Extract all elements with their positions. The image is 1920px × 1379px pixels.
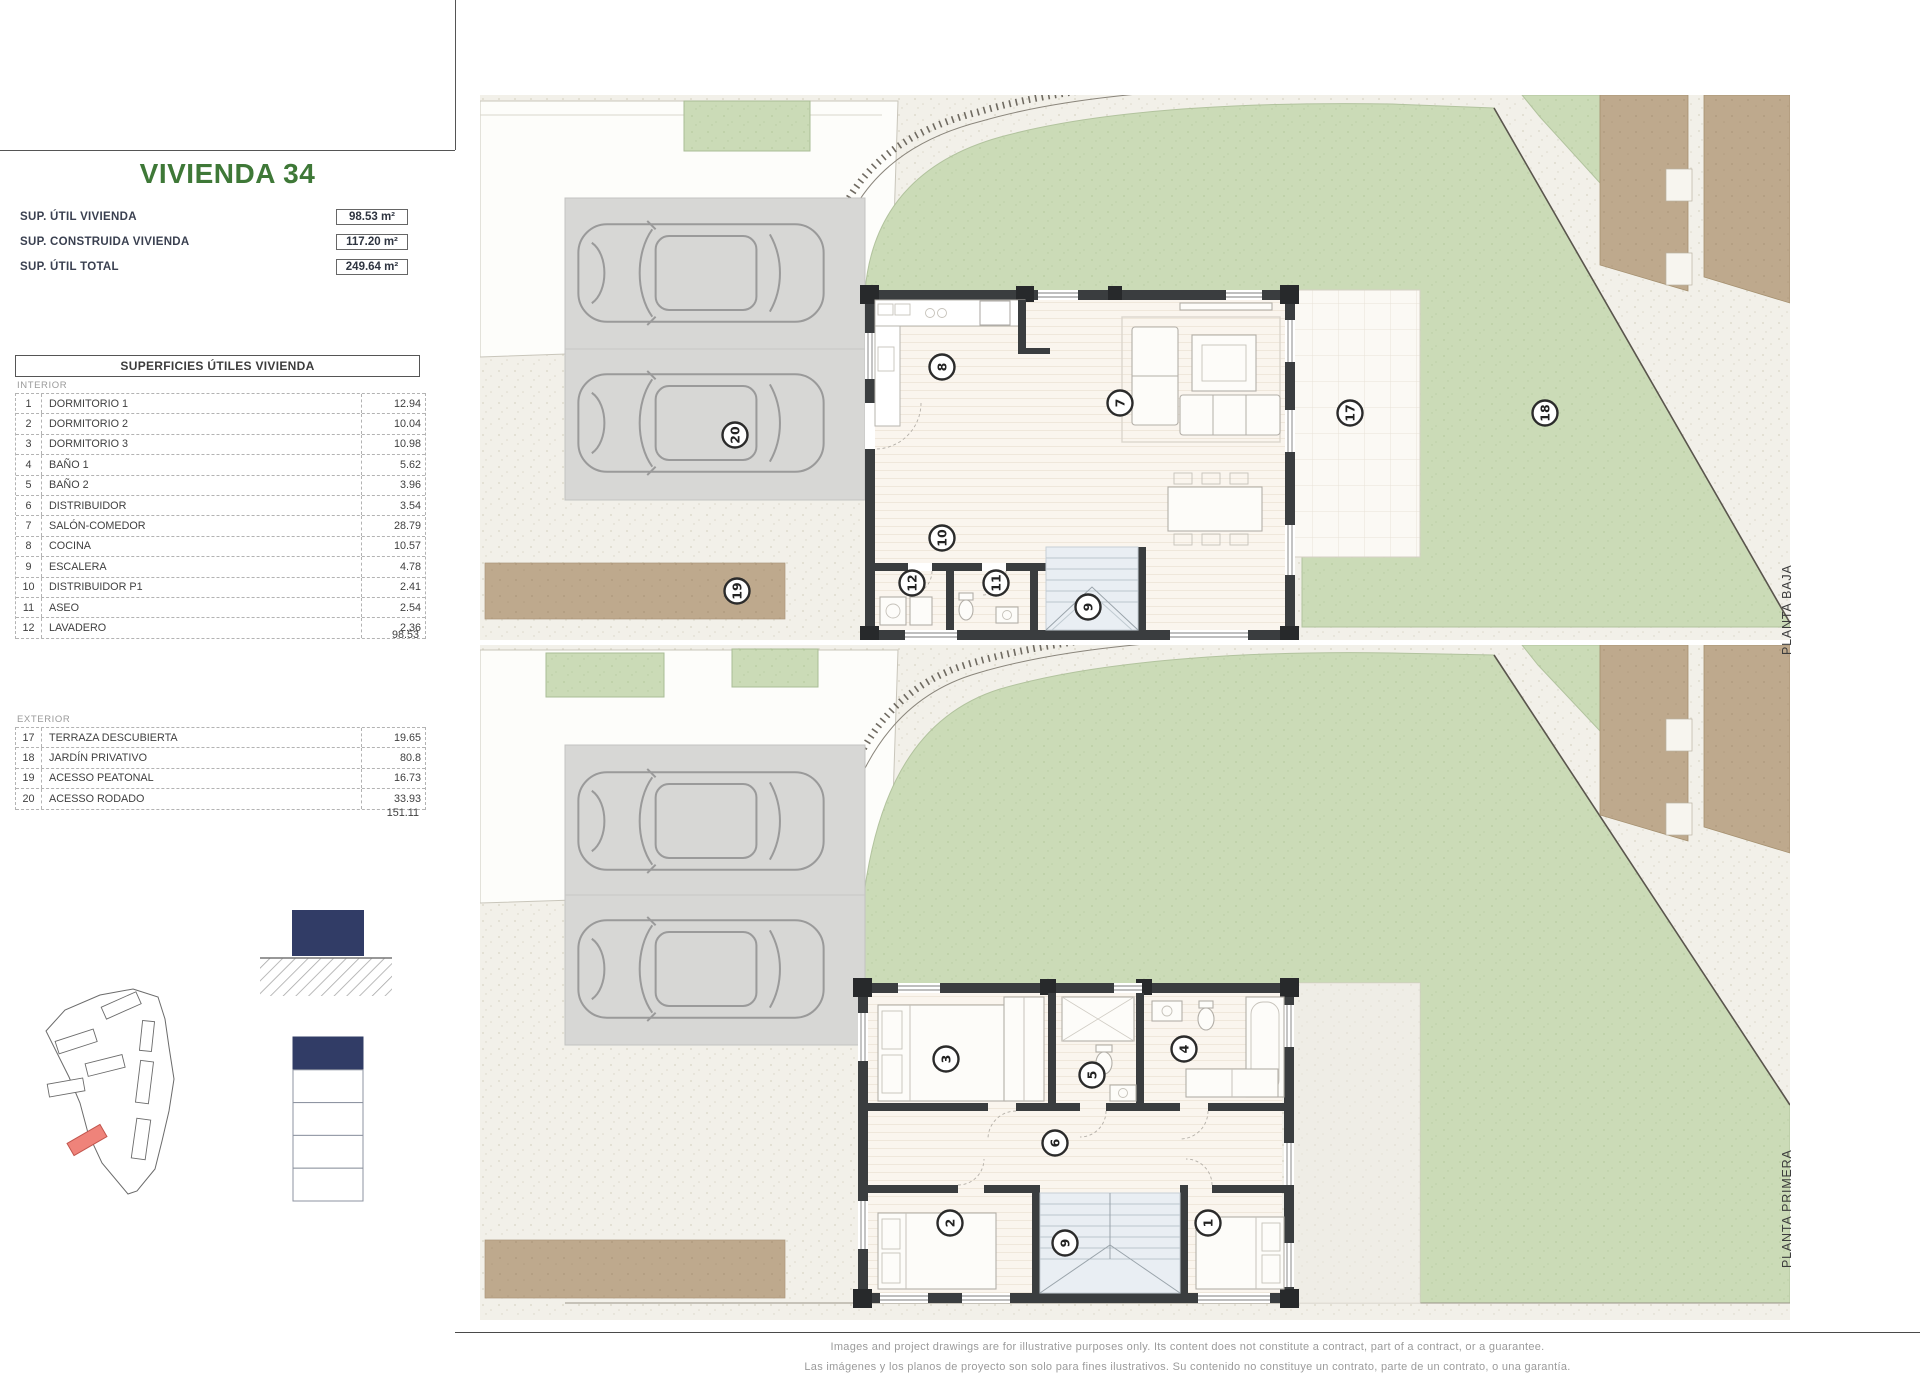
row-num: 18 — [16, 748, 42, 767]
row-num: 17 — [16, 728, 42, 747]
svg-text:4: 4 — [1177, 1044, 1192, 1053]
svg-text:2: 2 — [943, 1219, 958, 1228]
row-num: 19 — [16, 769, 42, 788]
summary-label: SUP. ÚTIL VIVIENDA — [20, 211, 137, 223]
footer-rule — [455, 1332, 1920, 1333]
row-num: 20 — [16, 789, 42, 808]
row-num: 4 — [16, 455, 42, 474]
row-name: JARDÍN PRIVATIVO — [42, 752, 361, 764]
svg-text:5: 5 — [1085, 1071, 1100, 1080]
floor-cell — [293, 1168, 363, 1201]
room-marker-peatonal: 19 — [725, 579, 750, 604]
row-value: 2.41 — [361, 578, 425, 597]
ground-hatch-icon — [260, 958, 392, 996]
row-num: 11 — [16, 598, 42, 617]
exterior-section-label: EXTERIOR — [17, 714, 70, 725]
plan-label-planta-baja: PLANTA BAJA — [1780, 564, 1794, 655]
row-num: 2 — [16, 414, 42, 433]
svg-text:10: 10 — [935, 529, 950, 547]
svg-text:6: 6 — [1048, 1138, 1063, 1147]
row-name: DORMITORIO 3 — [42, 438, 361, 450]
plan-sheet: VIVIENDA 34 SUP. ÚTIL VIVIENDA 98.53 m² … — [0, 0, 1920, 1379]
areas-table-header: SUPERFICIES ÚTILES VIVIENDA — [15, 355, 420, 377]
svg-text:7: 7 — [1113, 399, 1128, 408]
table-row: 7SALÓN-COMEDOR28.79 — [16, 516, 425, 536]
row-num: 9 — [16, 557, 42, 576]
ground-floor-plan: 8 7 10 12 11 9 17 18 19 20 — [480, 95, 1790, 640]
row-name: TERRAZA DESCUBIERTA — [42, 732, 361, 744]
room-marker-terraza: 17 — [1338, 401, 1363, 426]
row-name: DORMITORIO 1 — [42, 398, 361, 410]
disclaimer-es: Las imágenes y los planos de proyecto so… — [455, 1357, 1920, 1377]
elevation-key-diagram — [258, 906, 398, 998]
row-name: COCINA — [42, 540, 361, 552]
disclaimer: Images and project drawings are for illu… — [455, 1337, 1920, 1377]
pedestrian-path — [485, 1240, 785, 1298]
table-row: 1DORMITORIO 112.94 — [16, 393, 425, 414]
row-name: SALÓN-COMEDOR — [42, 520, 361, 532]
row-name: ACESSO RODADO — [42, 793, 361, 805]
svg-text:8: 8 — [935, 363, 950, 372]
row-value: 16.73 — [361, 769, 425, 788]
room-marker-distribuidor-p1: 6 — [1043, 1131, 1068, 1156]
row-name: DISTRIBUIDOR P1 — [42, 581, 361, 593]
building-volume-icon — [292, 910, 364, 956]
row-value: 2.54 — [361, 598, 425, 617]
floor-cell-active — [293, 1037, 363, 1070]
table-row: 3DORMITORIO 310.98 — [16, 435, 425, 455]
surface-summary: SUP. ÚTIL VIVIENDA 98.53 m² SUP. CONSTRU… — [20, 204, 408, 279]
table-row: 9ESCALERA4.78 — [16, 557, 425, 577]
svg-text:20: 20 — [728, 426, 743, 444]
row-num: 10 — [16, 578, 42, 597]
svg-text:3: 3 — [939, 1055, 954, 1064]
room-marker-bano2: 5 — [1080, 1063, 1105, 1088]
svg-text:19: 19 — [730, 582, 745, 599]
room-marker-dorm1: 1 — [1196, 1211, 1221, 1236]
row-value: 10.57 — [361, 537, 425, 556]
svg-text:18: 18 — [1538, 404, 1553, 421]
header-rule — [0, 150, 455, 151]
row-value: 12.94 — [361, 394, 425, 413]
summary-value: 249.64 m² — [336, 259, 408, 275]
table-row: 18JARDÍN PRIVATIVO80.8 — [16, 748, 425, 768]
table-row: 2DORMITORIO 210.04 — [16, 414, 425, 434]
room-marker-aseo: 11 — [984, 571, 1009, 596]
interior-section-label: INTERIOR — [17, 380, 67, 391]
summary-row: SUP. ÚTIL TOTAL 249.64 m² — [20, 254, 408, 279]
row-value: 19.65 — [361, 728, 425, 747]
table-row: 17TERRAZA DESCUBIERTA19.65 — [16, 727, 425, 748]
room-marker-escalera: 9 — [1076, 595, 1101, 620]
table-row: 11ASEO2.54 — [16, 598, 425, 618]
row-num: 6 — [16, 496, 42, 515]
row-num: 7 — [16, 516, 42, 535]
row-value: 10.04 — [361, 414, 425, 433]
floor-indicator — [290, 1035, 366, 1203]
table-row: 10DISTRIBUIDOR P12.41 — [16, 578, 425, 598]
table-row: 19ACESSO PEATONAL16.73 — [16, 769, 425, 789]
site-location-map — [38, 983, 188, 1198]
summary-label: SUP. CONSTRUIDA VIVIENDA — [20, 236, 190, 248]
table-row: 5BAÑO 23.96 — [16, 476, 425, 496]
room-marker-lavadero: 12 — [900, 571, 925, 596]
summary-value: 98.53 m² — [336, 209, 408, 225]
row-value: 3.96 — [361, 476, 425, 495]
row-value: 33.93 — [361, 789, 425, 808]
row-name: BAÑO 2 — [42, 479, 361, 491]
room-marker-cocina: 8 — [930, 355, 955, 380]
first-floor-plan: 3 5 4 6 2 9 1 — [480, 645, 1790, 1320]
row-name: ESCALERA — [42, 561, 361, 573]
floor-cell — [293, 1070, 363, 1103]
svg-text:9: 9 — [1058, 1239, 1073, 1248]
row-num: 3 — [16, 435, 42, 454]
floor-cell — [293, 1103, 363, 1136]
table-row: 4BAÑO 15.62 — [16, 455, 425, 475]
floor-cell — [293, 1135, 363, 1168]
summary-row: SUP. ÚTIL VIVIENDA 98.53 m² — [20, 204, 408, 229]
disclaimer-en: Images and project drawings are for illu… — [455, 1337, 1920, 1357]
row-num: 8 — [16, 537, 42, 556]
svg-text:11: 11 — [989, 574, 1004, 591]
svg-text:1: 1 — [1201, 1219, 1216, 1228]
table-row: 8COCINA10.57 — [16, 537, 425, 557]
room-marker-dorm3: 3 — [934, 1047, 959, 1072]
room-marker-bano1: 4 — [1172, 1037, 1197, 1062]
interior-areas-table: 1DORMITORIO 112.94 2DORMITORIO 210.04 3D… — [15, 393, 426, 639]
row-name: DORMITORIO 2 — [42, 418, 361, 430]
row-value: 10.98 — [361, 435, 425, 454]
row-value: 4.78 — [361, 557, 425, 576]
row-value: 80.8 — [361, 748, 425, 767]
row-name: BAÑO 1 — [42, 459, 361, 471]
exterior-total: 151.11 — [15, 807, 424, 819]
summary-label: SUP. ÚTIL TOTAL — [20, 261, 119, 273]
summary-value: 117.20 m² — [336, 234, 408, 250]
parking-area — [565, 198, 865, 500]
row-value: 3.54 — [361, 496, 425, 515]
page-title: VIVIENDA 34 — [0, 158, 455, 190]
plan-label-planta-primera: PLANTA PRIMERA — [1780, 1149, 1794, 1268]
header-rule-vertical — [455, 0, 456, 150]
row-name: DISTRIBUIDOR — [42, 500, 361, 512]
row-value: 28.79 — [361, 516, 425, 535]
row-name: ACESSO PEATONAL — [42, 772, 361, 784]
house-first-floor: 3 5 4 6 2 9 1 — [853, 978, 1299, 1308]
svg-text:9: 9 — [1081, 603, 1096, 612]
interior-total: 98.53 — [15, 629, 424, 641]
row-value: 5.62 — [361, 455, 425, 474]
room-marker-rodado: 20 — [723, 423, 748, 448]
summary-row: SUP. CONSTRUIDA VIVIENDA 117.20 m² — [20, 229, 408, 254]
room-marker-distribuidor: 10 — [930, 526, 955, 551]
row-num: 5 — [16, 476, 42, 495]
svg-text:12: 12 — [905, 574, 920, 591]
room-marker-escalera: 9 — [1053, 1231, 1078, 1256]
svg-text:17: 17 — [1343, 404, 1358, 421]
row-num: 1 — [16, 394, 42, 413]
room-marker-dorm2: 2 — [938, 1211, 963, 1236]
table-row: 6DISTRIBUIDOR3.54 — [16, 496, 425, 516]
room-marker-salon: 7 — [1108, 391, 1133, 416]
exterior-areas-table: 17TERRAZA DESCUBIERTA19.65 18JARDÍN PRIV… — [15, 727, 426, 810]
house-ground-floor: 8 7 10 12 11 9 — [860, 285, 1299, 640]
room-marker-jardin: 18 — [1533, 401, 1558, 426]
parking-area — [565, 745, 865, 1045]
row-name: ASEO — [42, 602, 361, 614]
